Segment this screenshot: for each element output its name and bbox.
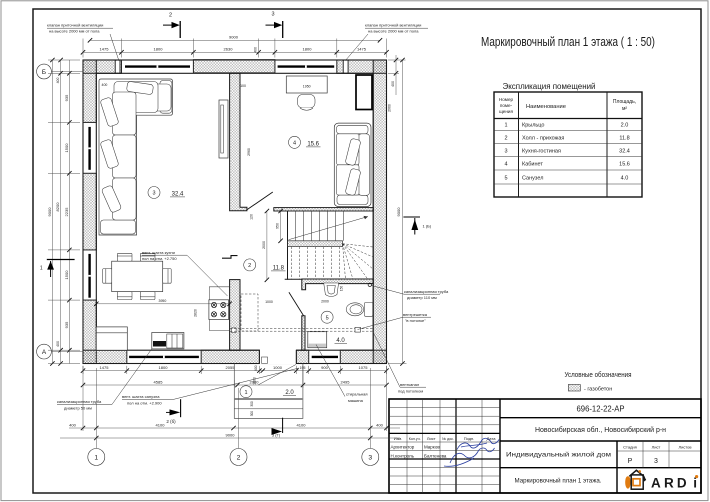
- svg-text:11.8: 11.8: [273, 266, 285, 272]
- svg-text:канализационная труба: канализационная труба: [57, 399, 102, 404]
- svg-text:5: 5: [326, 315, 329, 321]
- svg-text:3: 3: [368, 454, 372, 461]
- svg-text:Архитектор: Архитектор: [391, 445, 415, 450]
- svg-text:300: 300: [250, 411, 254, 417]
- svg-text:3: 3: [654, 458, 658, 465]
- svg-text:Условные обозначения: Условные обозначения: [565, 371, 632, 379]
- svg-text:машина: машина: [348, 398, 364, 403]
- svg-text:Подп.: Подп.: [464, 436, 475, 441]
- svg-text:300: 300: [250, 401, 254, 407]
- svg-text:Кухня-гостиная: Кухня-гостиная: [522, 149, 561, 155]
- svg-text:Санузел: Санузел: [522, 176, 543, 182]
- svg-text:поме-: поме-: [500, 103, 513, 108]
- svg-text:1800: 1800: [303, 47, 313, 52]
- svg-text:950: 950: [276, 223, 280, 229]
- svg-text:1500: 1500: [64, 143, 69, 153]
- svg-text:1500: 1500: [64, 270, 69, 280]
- svg-text:клапан приточной вентиляции: клапан приточной вентиляции: [47, 23, 103, 28]
- svg-text:9000: 9000: [226, 432, 236, 437]
- svg-text:3: 3: [271, 12, 274, 18]
- svg-text:5: 5: [504, 176, 507, 182]
- svg-text:2055: 2055: [226, 365, 236, 370]
- svg-text:Площадь,: Площадь,: [613, 99, 636, 105]
- svg-text:15.6: 15.6: [307, 142, 319, 148]
- svg-text:2235: 2235: [64, 207, 69, 217]
- svg-text:Н.контроль: Н.контроль: [391, 453, 415, 458]
- svg-text:400: 400: [56, 78, 60, 84]
- svg-text:Стадия: Стадия: [623, 445, 637, 450]
- svg-text:Кол.уч.: Кол.уч.: [409, 437, 421, 441]
- svg-text:9000: 9000: [396, 207, 401, 217]
- svg-text:Экспликация помещений: Экспликация помещений: [503, 82, 596, 91]
- svg-text:2 (б): 2 (б): [166, 419, 176, 424]
- svg-text:под потолком: под потолком: [398, 388, 423, 393]
- svg-text:1: 1: [504, 123, 507, 129]
- svg-text:1000: 1000: [265, 300, 273, 304]
- svg-text:32.4: 32.4: [619, 149, 630, 155]
- svg-text:Б: Б: [42, 69, 46, 76]
- svg-text:4585: 4585: [154, 379, 164, 384]
- svg-text:Лист: Лист: [427, 436, 436, 441]
- svg-text:стиральная: стиральная: [346, 392, 368, 397]
- svg-text:А: А: [42, 349, 47, 356]
- svg-text:щения: щения: [499, 109, 513, 114]
- svg-text:120: 120: [249, 214, 253, 220]
- svg-text:2000: 2000: [262, 241, 266, 249]
- svg-text:Р: Р: [628, 458, 633, 465]
- svg-text:4100: 4100: [156, 422, 166, 427]
- svg-text:Холл - прихожая: Холл - прихожая: [522, 136, 564, 142]
- svg-text:32.4: 32.4: [172, 192, 184, 198]
- svg-text:1 (Б): 1 (Б): [423, 224, 432, 229]
- svg-text:1475: 1475: [100, 47, 110, 52]
- svg-text:2: 2: [504, 136, 507, 142]
- svg-text:Наименование: Наименование: [526, 104, 566, 110]
- svg-text:9000: 9000: [47, 207, 52, 217]
- svg-text:м²: м²: [622, 106, 627, 112]
- svg-text:№ док.: № док.: [442, 437, 454, 441]
- svg-text:400: 400: [376, 422, 383, 427]
- svg-text:100: 100: [240, 84, 246, 88]
- svg-text:1000: 1000: [253, 377, 257, 385]
- svg-text:2.0: 2.0: [621, 123, 629, 129]
- svg-text:3: 3: [152, 191, 155, 197]
- svg-text:Дата: Дата: [487, 436, 497, 441]
- svg-text:Лист: Лист: [652, 445, 661, 450]
- svg-text:Номер: Номер: [499, 97, 514, 102]
- svg-text:696-12-22-АР: 696-12-22-АР: [577, 405, 625, 414]
- svg-text:4100: 4100: [297, 422, 307, 427]
- svg-text:2820: 2820: [194, 309, 198, 317]
- svg-text:1800: 1800: [159, 365, 169, 370]
- svg-text:канализационная труба: канализационная труба: [404, 289, 449, 294]
- svg-text:вент. шахта санузла: вент. шахта санузла: [122, 394, 160, 399]
- svg-text:вент. шахта кухни: вент. шахта кухни: [142, 250, 175, 255]
- svg-text:вентрешетка: вентрешетка: [403, 312, 428, 317]
- svg-text:2495: 2495: [341, 379, 351, 384]
- svg-text:ARD: ARD: [651, 476, 690, 491]
- svg-text:1000: 1000: [273, 365, 283, 370]
- svg-text:на высоте 2000 мм от пола: на высоте 2000 мм от пола: [49, 29, 100, 34]
- svg-text:Крыльцо: Крыльцо: [522, 123, 544, 129]
- svg-text:2630: 2630: [224, 47, 234, 52]
- svg-text:935: 935: [64, 321, 69, 328]
- svg-text:4.0: 4.0: [621, 176, 629, 182]
- svg-text:9000: 9000: [229, 34, 239, 39]
- svg-text:1: 1: [244, 390, 247, 396]
- svg-text:1: 1: [40, 266, 43, 272]
- svg-text:4: 4: [293, 140, 296, 146]
- svg-text:2: 2: [169, 13, 172, 19]
- svg-text:1: 1: [94, 454, 98, 461]
- svg-text:935: 935: [64, 94, 69, 101]
- svg-text:195: 195: [300, 366, 306, 370]
- svg-text:Балтенева: Балтенева: [424, 453, 447, 458]
- svg-text:400: 400: [69, 422, 76, 427]
- svg-text:150: 150: [340, 286, 344, 292]
- svg-text:- газобетон: - газобетон: [584, 386, 612, 392]
- svg-text:Маркировочный план 1 этажа.: Маркировочный план 1 этажа.: [515, 478, 602, 485]
- svg-text:8200: 8200: [55, 202, 60, 212]
- svg-text:2960: 2960: [247, 148, 251, 156]
- svg-text:900: 900: [321, 365, 328, 370]
- svg-text:2960: 2960: [388, 104, 392, 112]
- svg-text:2: 2: [248, 263, 251, 269]
- svg-text:диаметр 110 мм: диаметр 110 мм: [407, 295, 437, 300]
- svg-text:Новосибирская обл., Новосибирс: Новосибирская обл., Новосибирский р-н: [535, 426, 666, 434]
- svg-text:400: 400: [102, 83, 108, 87]
- svg-text:Индивидуальный жилой дом: Индивидуальный жилой дом: [506, 451, 612, 459]
- svg-text:400: 400: [56, 341, 60, 347]
- svg-text:Кабинет: Кабинет: [522, 162, 543, 168]
- svg-text:клапан приточной вентиляции: клапан приточной вентиляции: [365, 23, 421, 28]
- svg-text:400: 400: [253, 47, 257, 53]
- svg-text:400: 400: [391, 81, 395, 87]
- svg-text:вентканал: вентканал: [400, 382, 420, 387]
- svg-text:4.0: 4.0: [336, 338, 345, 344]
- svg-text:2000: 2000: [321, 300, 329, 304]
- svg-text:4: 4: [504, 162, 507, 168]
- svg-text:на высоте 2000 мм от пола: на высоте 2000 мм от пола: [368, 29, 419, 34]
- svg-text:2: 2: [237, 454, 241, 461]
- svg-text:1075: 1075: [359, 365, 369, 370]
- svg-text:Марков: Марков: [424, 445, 440, 450]
- svg-text:Маркировочный план 1 этажа ( 1: Маркировочный план 1 этажа ( 1 : 50): [481, 34, 655, 49]
- svg-text:400: 400: [254, 365, 258, 371]
- svg-text:1475: 1475: [357, 47, 367, 52]
- svg-text:диаметр 50 мм: диаметр 50 мм: [64, 405, 92, 410]
- svg-text:пол на отм. +2.750: пол на отм. +2.750: [142, 256, 177, 261]
- svg-text:11.8: 11.8: [619, 136, 629, 142]
- svg-text:Листов: Листов: [679, 445, 692, 450]
- svg-text:1950: 1950: [303, 85, 311, 89]
- svg-text:1475: 1475: [100, 365, 110, 370]
- svg-text:3950: 3950: [159, 299, 167, 303]
- svg-text:15.6: 15.6: [619, 162, 630, 168]
- svg-text:3: 3: [504, 149, 507, 155]
- svg-text:Изм.: Изм.: [394, 436, 403, 441]
- svg-text:2.0: 2.0: [285, 390, 294, 396]
- svg-text:1800: 1800: [154, 47, 164, 52]
- svg-text:"в потолке": "в потолке": [405, 318, 426, 323]
- svg-text:пол на отм. +2.900: пол на отм. +2.900: [127, 400, 162, 405]
